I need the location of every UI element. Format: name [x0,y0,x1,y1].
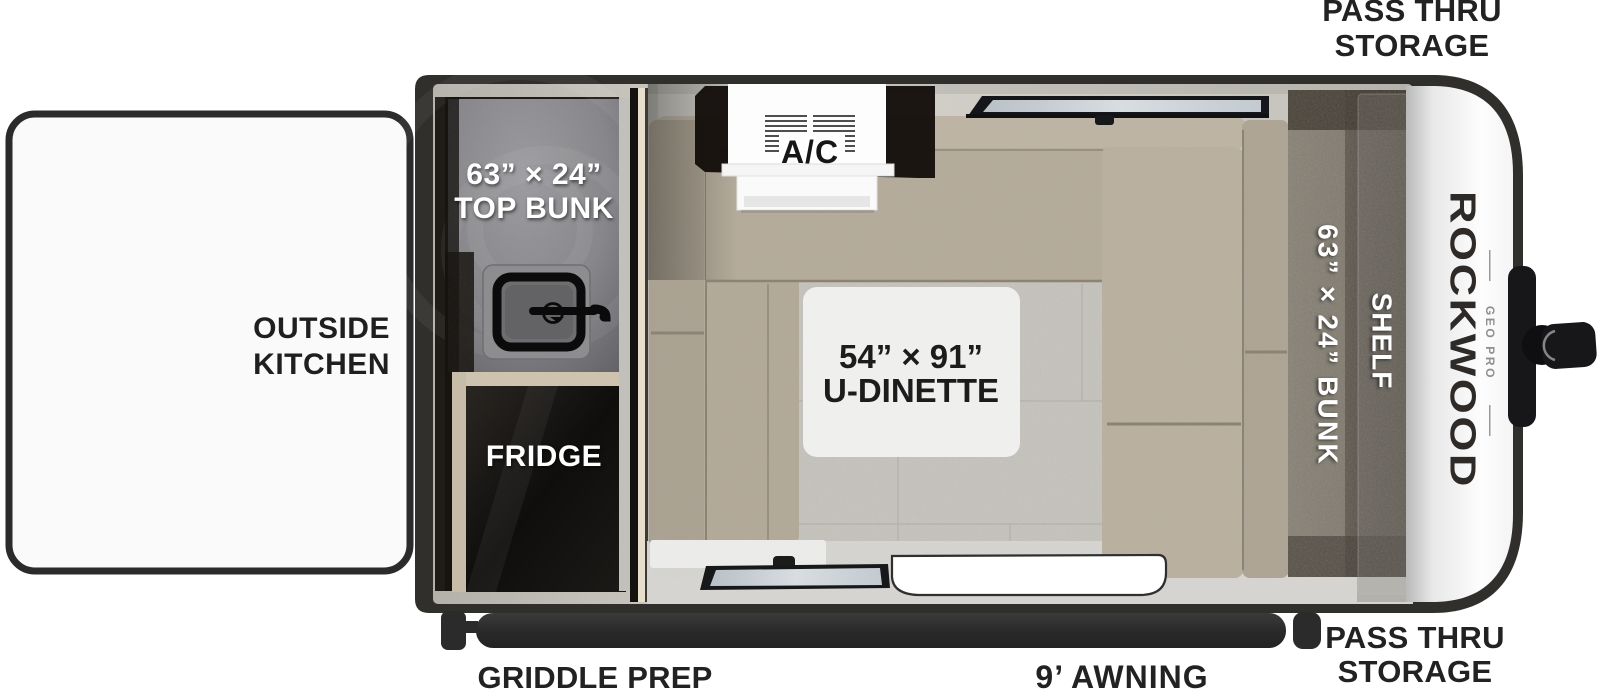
svg-text:54” × 91”: 54” × 91” [839,338,983,375]
svg-text:GEO PRO: GEO PRO [1483,306,1497,380]
svg-text:ROCKWOOD: ROCKWOOD [1443,191,1484,489]
svg-text:OUTSIDE: OUTSIDE [253,312,390,345]
svg-text:GRIDDLE PREP: GRIDDLE PREP [478,660,713,693]
svg-text:SHELF: SHELF [1367,293,1398,390]
svg-text:TOP BUNK: TOP BUNK [454,192,614,225]
svg-text:KITCHEN: KITCHEN [253,348,390,381]
svg-text:PASS THRU: PASS THRU [1325,620,1505,655]
svg-text:PASS THRU: PASS THRU [1322,0,1502,28]
svg-text:63” × 24”: 63” × 24” [466,158,601,191]
svg-text:9’ AWNING: 9’ AWNING [1035,659,1208,693]
svg-text:FRIDGE: FRIDGE [486,440,602,473]
svg-text:U-DINETTE: U-DINETTE [823,372,999,409]
svg-text:63” × 24” BUNK: 63” × 24” BUNK [1313,224,1344,466]
svg-text:STORAGE: STORAGE [1338,654,1493,689]
svg-text:STORAGE: STORAGE [1335,28,1490,63]
